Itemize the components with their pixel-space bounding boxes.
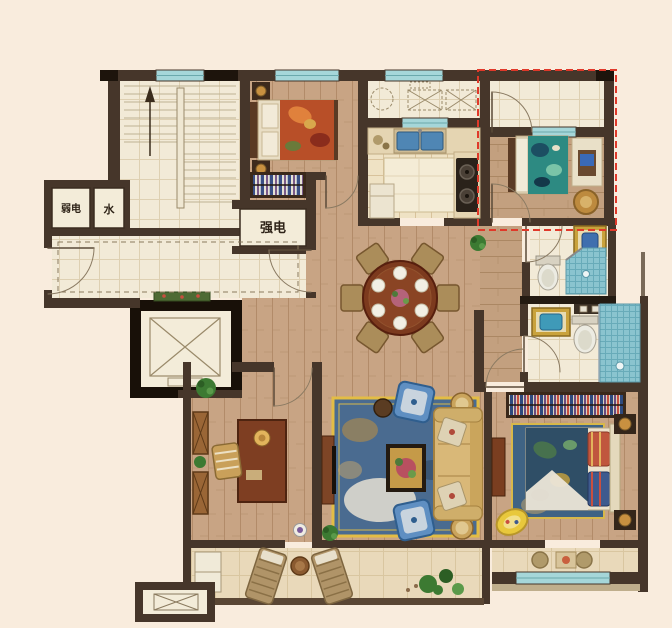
- shaft-water: 水: [94, 188, 124, 228]
- bed-teal: [508, 136, 568, 194]
- armchair-blue: [393, 381, 436, 424]
- stair-rail: [177, 88, 184, 208]
- desk: [572, 138, 602, 186]
- weak-electric-label: 弱电: [61, 202, 81, 215]
- dining-chair: [437, 285, 459, 311]
- floor-cushion: [532, 552, 548, 568]
- kitchen-furniture: [368, 128, 480, 218]
- armchair-blue: [393, 499, 436, 542]
- potted-plant: [470, 235, 486, 251]
- stove: [454, 152, 480, 218]
- potted-plant: [196, 378, 216, 398]
- bed-floral: [250, 100, 338, 160]
- shaft-weak-electric: 弱电: [52, 188, 90, 228]
- window-utility: [385, 70, 443, 81]
- tv-icon: [332, 446, 336, 494]
- lamp-icon: [256, 86, 266, 96]
- shower-area: [566, 248, 606, 294]
- potted-plant: [322, 525, 338, 541]
- lamp-icon: [619, 514, 631, 526]
- desk-chair: [212, 443, 242, 480]
- window-bedroom-north: [275, 70, 339, 81]
- master-bedroom-furniture: [492, 392, 636, 540]
- wardrobe: [250, 172, 306, 198]
- shower-area: [599, 304, 640, 382]
- drain-icon: [616, 362, 624, 370]
- bath-corridor-floor: [480, 226, 522, 382]
- room-strong-electric: 强电: [240, 209, 306, 246]
- sink-icon: [532, 308, 570, 336]
- lamp-icon: [619, 418, 631, 430]
- laptop-icon: [580, 154, 594, 166]
- coffee-table: [386, 444, 426, 492]
- floor-cushion: [576, 552, 592, 568]
- entry-hall-floor: [316, 172, 358, 234]
- living-room-furniture: [322, 381, 482, 542]
- toilet-icon: [536, 256, 560, 290]
- writing-desk: [238, 420, 286, 502]
- bookshelf: [193, 412, 208, 514]
- master-bed: [526, 424, 620, 512]
- headboard: [610, 424, 620, 512]
- potted-plant: [194, 456, 206, 468]
- dresser: [492, 438, 505, 496]
- ac-platform: [135, 582, 215, 622]
- floor-plan: 弱电 水 强电: [0, 0, 672, 628]
- terrace-floor: [488, 80, 604, 127]
- master-balcony-furniture: [532, 552, 592, 568]
- double-sink: [394, 129, 446, 153]
- water-label: 水: [104, 202, 116, 216]
- toilet-icon: [572, 316, 598, 353]
- window-master-balcony: [516, 572, 610, 584]
- strong-electric-label: 强电: [260, 220, 286, 236]
- dining-chair: [341, 285, 363, 311]
- window-stairwell: [156, 70, 204, 81]
- kitchenware: [373, 135, 383, 145]
- round-stool: [374, 399, 392, 417]
- fridge: [370, 184, 394, 218]
- sofa: [434, 408, 482, 520]
- wardrobe: [506, 392, 626, 418]
- drain-icon: [583, 271, 590, 278]
- window-kitchen: [402, 118, 448, 128]
- floor-plan-canvas: 弱电 水 强电: [0, 0, 672, 628]
